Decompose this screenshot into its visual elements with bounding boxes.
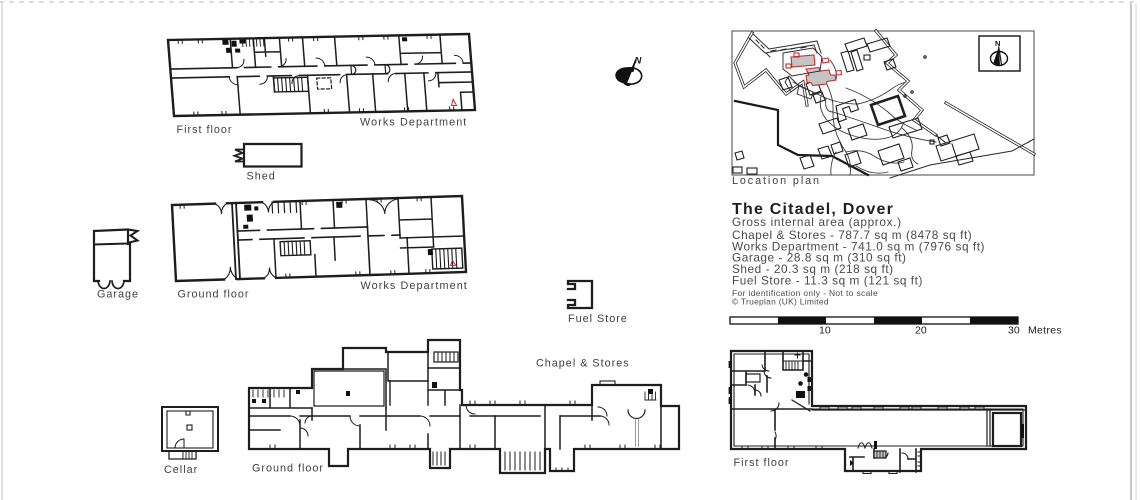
svg-text:Fuel Store - 11.3 sq m (121 sq: Fuel Store - 11.3 sq m (121 sq ft) [732,274,923,288]
svg-text:Shed: Shed [247,171,276,183]
svg-text:Cellar: Cellar [164,464,198,476]
svg-text:Fuel Store: Fuel Store [568,313,628,325]
svg-text:© Trueplan (UK) Limited: © Trueplan (UK) Limited [732,297,829,307]
svg-text:First floor: First floor [734,457,790,469]
svg-text:First floor: First floor [177,124,233,136]
svg-text:Garage: Garage [97,289,139,301]
svg-text:Chapel & Stores: Chapel & Stores [536,358,630,370]
svg-text:Works Department: Works Department [360,117,467,129]
svg-text:Ground floor: Ground floor [252,463,324,475]
svg-text:10: 10 [819,325,831,337]
svg-text:Works Department: Works Department [361,280,468,292]
svg-text:20: 20 [915,325,927,337]
svg-text:Location plan: Location plan [732,175,821,187]
svg-text:N: N [995,39,1000,48]
svg-text:Ground floor: Ground floor [178,289,250,301]
svg-text:Metres: Metres [1028,325,1062,337]
svg-text:Gross internal area (approx.): Gross internal area (approx.) [732,215,902,229]
svg-text:N: N [635,56,643,67]
svg-text:30: 30 [1008,325,1020,337]
